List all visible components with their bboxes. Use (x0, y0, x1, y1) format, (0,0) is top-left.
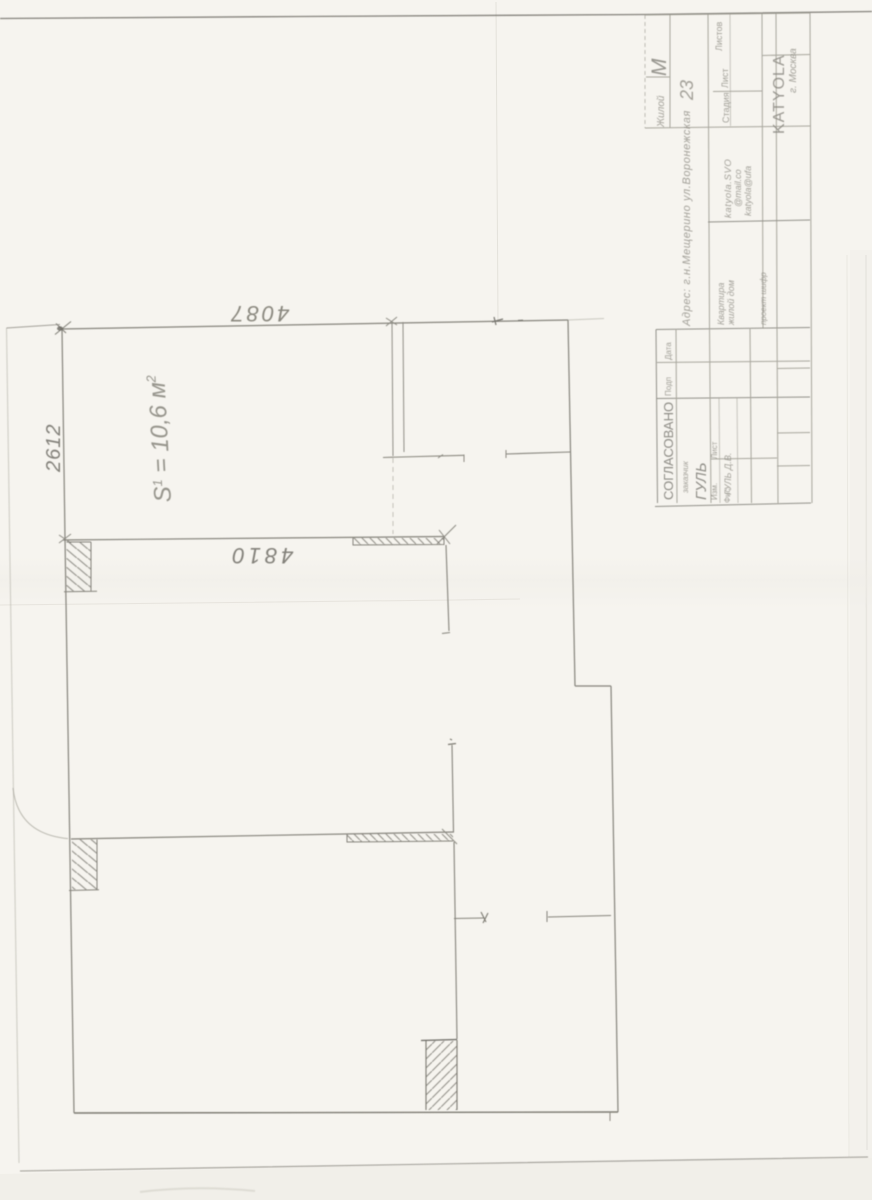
svg-text:Лист: Лист (720, 68, 730, 88)
svg-text:Жилой: Жилой (656, 95, 667, 128)
svg-text:4810: 4810 (229, 543, 294, 568)
svg-text:Дата: Дата (664, 342, 673, 360)
svg-text:ГУЛЬ Д.В.: ГУЛЬ Д.В. (723, 453, 733, 495)
svg-text:Лист: Лист (710, 441, 719, 459)
svg-text:Изм.: Изм. (710, 483, 719, 500)
svg-text:katyola@ufa: katyola@ufa (743, 166, 753, 216)
svg-text:проект шифр: проект шифр (759, 272, 768, 325)
svg-text:жилой дом: жилой дом (726, 280, 736, 326)
svg-text:2612: 2612 (43, 424, 65, 474)
svg-text:Стадия: Стадия (721, 92, 731, 123)
svg-text:@mail.co: @mail.co (733, 169, 743, 207)
svg-text:заказчик: заказчик (681, 460, 690, 494)
svg-text:Листов: Листов (714, 22, 724, 51)
svg-text:Адрес: г.н.Мещерино ул.Воронеж: Адрес: г.н.Мещерино ул.Воронежская (681, 110, 693, 327)
svg-text:М: М (648, 58, 671, 76)
svg-text:СОГЛАСОВАНО: СОГЛАСОВАНО (661, 402, 676, 500)
svg-text:ГУЛЬ: ГУЛЬ (693, 463, 710, 500)
svg-text:Подп: Подп (664, 377, 673, 396)
svg-text:4087: 4087 (229, 301, 290, 326)
svg-text:г. Москва: г. Москва (788, 48, 799, 93)
svg-text:KATYOLA: KATYOLA (771, 54, 788, 134)
svg-text:23: 23 (677, 80, 697, 101)
svg-text:Квартира: Квартира (716, 283, 726, 325)
